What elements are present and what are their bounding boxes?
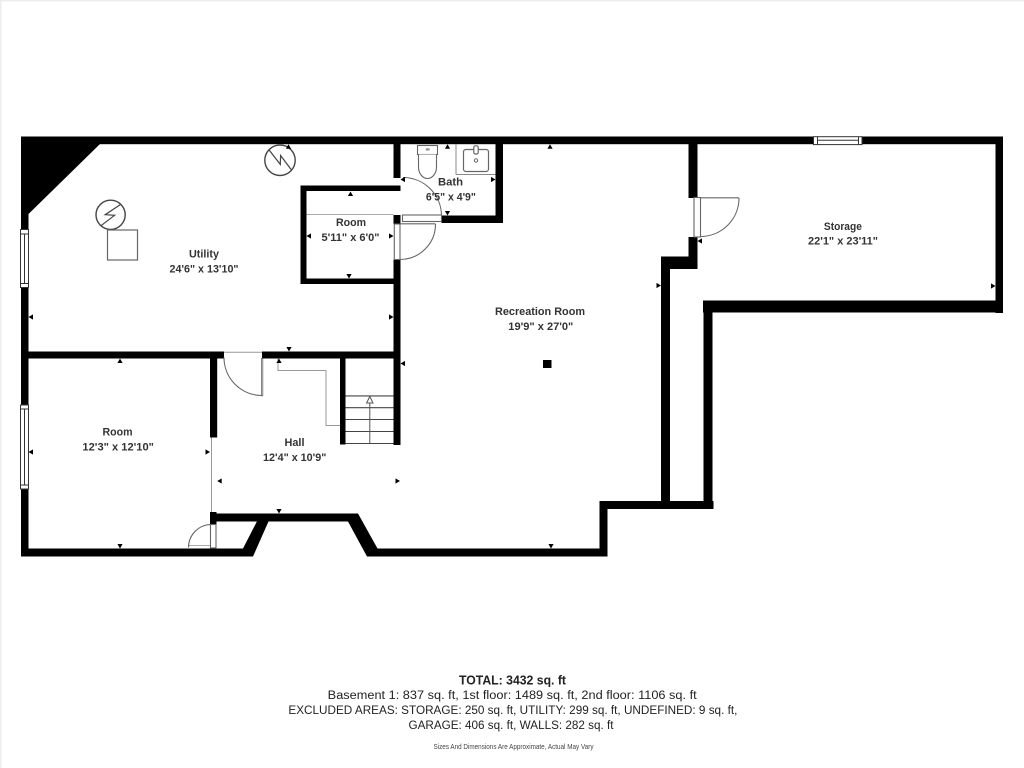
svg-text:Bath: Bath [438,177,463,189]
svg-text:12'3" x 12'10": 12'3" x 12'10" [82,442,154,454]
svg-text:6'5" x 4'9": 6'5" x 4'9" [426,192,476,204]
svg-text:24'6" x 13'10": 24'6" x 13'10" [170,264,239,276]
svg-text:Room: Room [103,427,133,439]
svg-text:19'9" x 27'0": 19'9" x 27'0" [508,321,573,333]
svg-text:GARAGE: 406 sq. ft, WALLS: 282: GARAGE: 406 sq. ft, WALLS: 282 sq. ft [409,720,615,732]
svg-text:Hall: Hall [285,437,305,449]
svg-text:Recreation Room: Recreation Room [495,306,585,318]
svg-text:Basement 1: 837 sq. ft, 1st fl: Basement 1: 837 sq. ft, 1st floor: 1489 … [328,690,698,702]
svg-text:5'11" x 6'0": 5'11" x 6'0" [322,232,380,244]
svg-text:Room: Room [336,217,366,229]
svg-text:22'1" x 23'11": 22'1" x 23'11" [808,236,878,248]
svg-text:12'4" x 10'9": 12'4" x 10'9" [263,452,326,464]
svg-text:EXCLUDED AREAS: STORAGE: 250 s: EXCLUDED AREAS: STORAGE: 250 sq. ft, UTI… [288,705,737,717]
svg-text:Utility: Utility [189,249,220,261]
svg-text:Storage: Storage [824,221,862,233]
svg-text:TOTAL: 3432 sq. ft: TOTAL: 3432 sq. ft [459,674,567,688]
svg-text:Sizes And Dimensions Are Appro: Sizes And Dimensions Are Approximate, Ac… [434,742,594,751]
